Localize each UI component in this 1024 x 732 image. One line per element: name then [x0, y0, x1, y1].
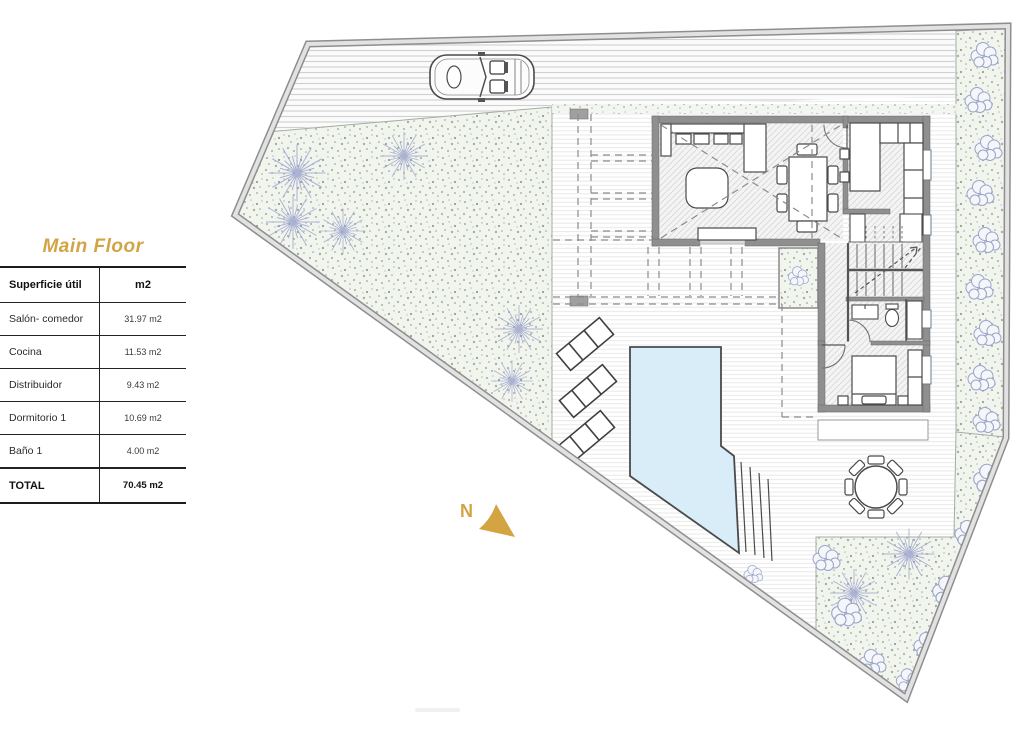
faint-mark	[415, 708, 460, 712]
north-arrow: N	[460, 501, 515, 537]
stool	[840, 172, 849, 182]
car-hood-detail	[447, 66, 461, 88]
table-row: Distribuidor 9.43 m2	[0, 369, 186, 402]
col-header-m2: m2	[100, 268, 186, 302]
row-value: 4.00 m2	[100, 435, 186, 467]
row-value: 11.53 m2	[100, 336, 186, 368]
coffee-table	[686, 168, 728, 208]
pillow	[862, 396, 886, 404]
floor-plan-page: N Main Floor Superficie útil m2 Salón- c…	[0, 0, 1024, 732]
toilet	[886, 310, 899, 327]
planter	[779, 248, 818, 308]
area-table: Superficie útil m2 Salón- comedor 31.97 …	[0, 266, 186, 504]
row-label: Baño 1	[0, 435, 100, 467]
car-seat	[490, 61, 505, 74]
tv-cabinet	[698, 228, 756, 240]
headrest	[504, 81, 508, 92]
headrest	[504, 62, 508, 73]
porch-column	[570, 109, 588, 119]
gravel-band	[552, 104, 1010, 114]
row-label: Dormitorio 1	[0, 402, 100, 434]
plan-title: Main Floor	[0, 236, 186, 258]
nightstand	[838, 396, 848, 405]
row-label: Distribuidor	[0, 369, 100, 401]
stool	[840, 149, 849, 159]
car	[430, 52, 534, 102]
total-label: TOTAL	[0, 469, 100, 502]
row-label: Cocina	[0, 336, 100, 368]
table-header-row: Superficie útil m2	[0, 268, 186, 303]
toilet-tank	[886, 304, 898, 309]
north-arrow-glyph	[479, 504, 515, 537]
nightstand	[898, 396, 908, 405]
round-table	[845, 456, 907, 518]
row-value: 31.97 m2	[100, 303, 186, 335]
car-mirror	[478, 52, 485, 56]
row-label: Salón- comedor	[0, 303, 100, 335]
row-value: 9.43 m2	[100, 369, 186, 401]
table-row: Cocina 11.53 m2	[0, 336, 186, 369]
sliding-window-sill	[700, 240, 745, 244]
terrace-step	[818, 420, 928, 440]
table-row: Baño 1 4.00 m2	[0, 435, 186, 468]
shower-closet	[907, 301, 922, 339]
svg-text:N: N	[460, 501, 473, 521]
car-mirror	[478, 98, 485, 102]
table-total-row: TOTAL 70.45 m2	[0, 468, 186, 502]
col-header-superficie: Superficie útil	[0, 268, 100, 302]
total-value: 70.45 m2	[100, 469, 186, 502]
row-value: 10.69 m2	[100, 402, 186, 434]
car-seat	[490, 80, 505, 93]
table-row: Salón- comedor 31.97 m2	[0, 303, 186, 336]
table-row: Dormitorio 1 10.69 m2	[0, 402, 186, 435]
